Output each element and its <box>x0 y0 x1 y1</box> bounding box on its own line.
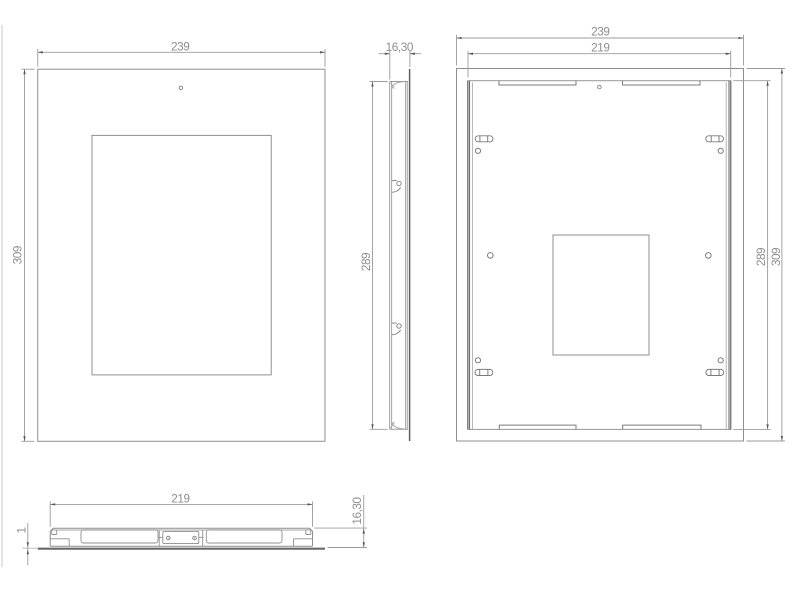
svg-text:289: 289 <box>754 248 768 266</box>
svg-text:239: 239 <box>171 40 189 54</box>
svg-text:309: 309 <box>11 246 25 264</box>
svg-text:239: 239 <box>591 24 609 38</box>
svg-text:1: 1 <box>15 527 29 533</box>
svg-text:289: 289 <box>359 253 373 271</box>
svg-text:219: 219 <box>171 492 189 506</box>
svg-text:219: 219 <box>591 41 609 55</box>
svg-text:309: 309 <box>769 248 783 266</box>
svg-text:16,30: 16,30 <box>350 496 364 524</box>
svg-text:16,30: 16,30 <box>386 40 414 54</box>
